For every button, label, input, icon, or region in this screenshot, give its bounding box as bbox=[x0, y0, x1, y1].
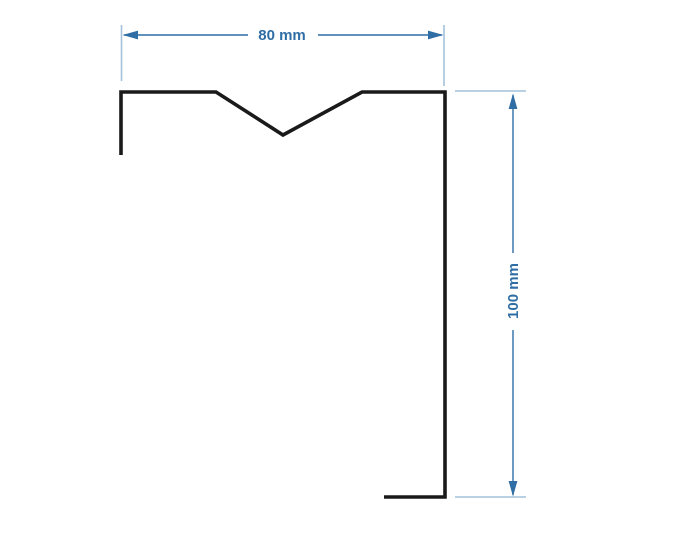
width-dimension: 80 mm bbox=[122, 25, 445, 86]
height-dimension-label: 100 mm bbox=[505, 263, 522, 319]
width-dimension-label: 80 mm bbox=[258, 27, 306, 44]
profile-outline bbox=[121, 92, 445, 497]
arrow-left-icon bbox=[123, 31, 139, 40]
arrow-up-icon bbox=[509, 94, 518, 110]
technical-drawing: 80 mm 100 mm bbox=[0, 0, 675, 540]
height-dimension: 100 mm bbox=[455, 91, 526, 497]
arrow-right-icon bbox=[428, 31, 444, 40]
drawing-svg: 80 mm 100 mm bbox=[0, 0, 675, 540]
arrow-down-icon bbox=[509, 481, 518, 497]
